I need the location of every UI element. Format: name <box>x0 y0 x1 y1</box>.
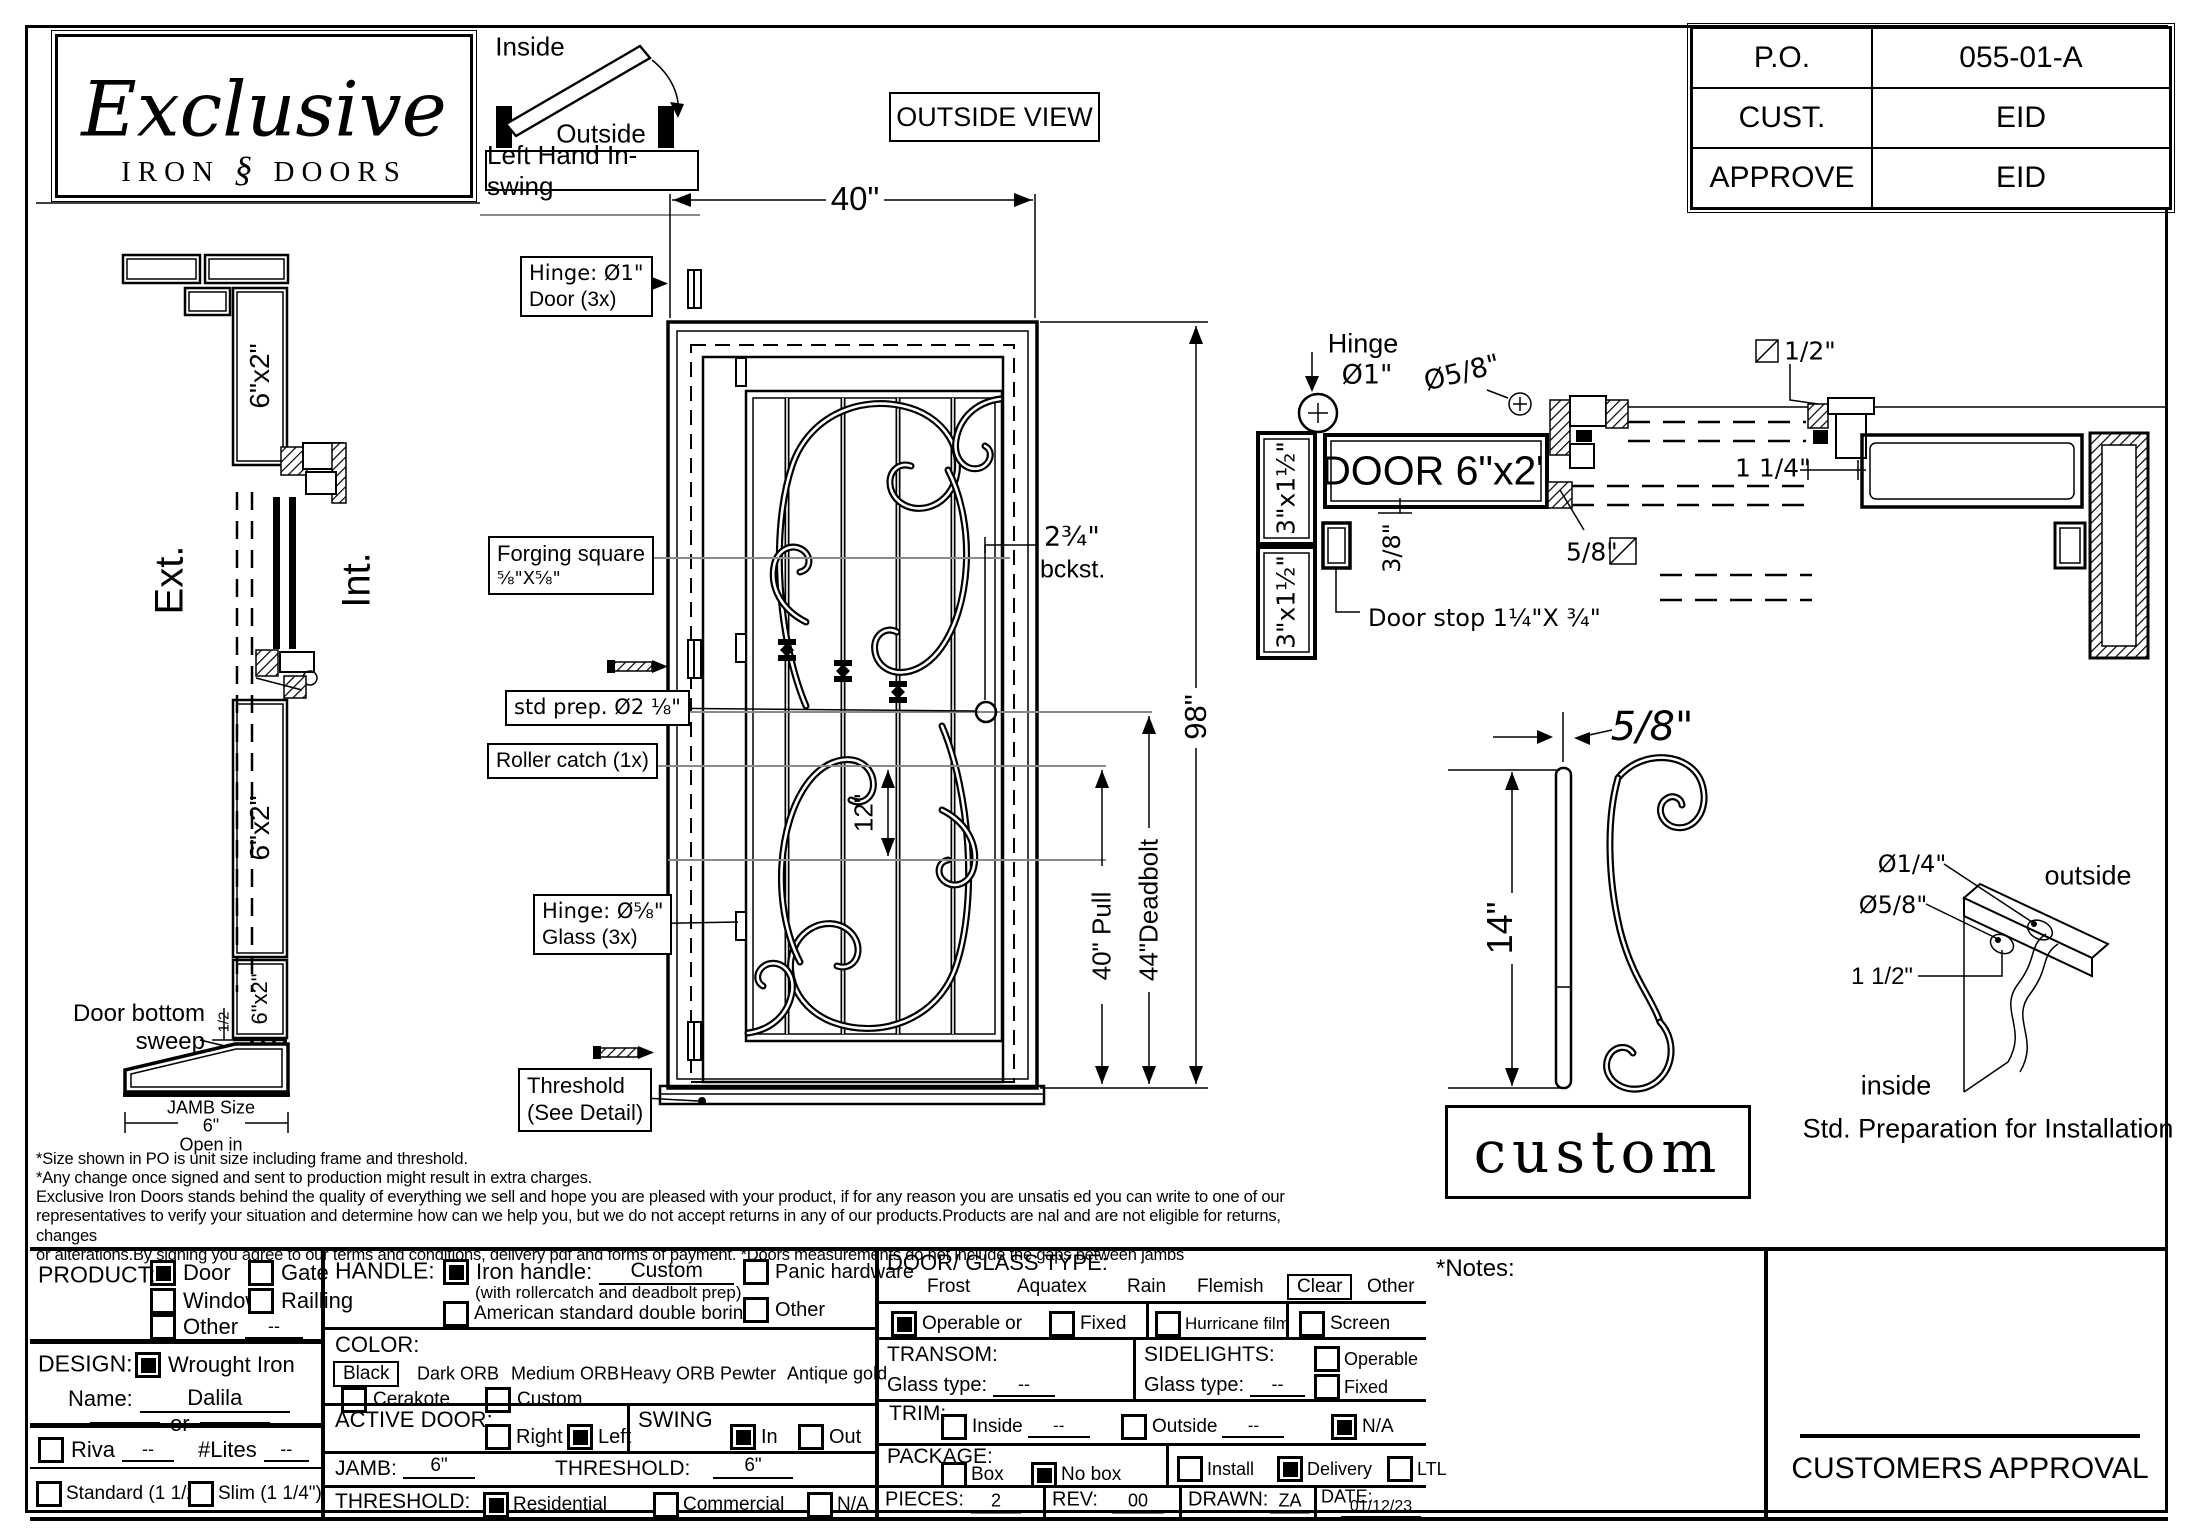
dim-width: 40" <box>831 180 879 218</box>
trim-outside-value[interactable]: -- <box>1222 1416 1284 1438</box>
hinge-door-label: Hinge: Ø1" Door (3x) <box>520 256 653 317</box>
drawn-cell: DRAWN: ZA <box>1182 1485 1317 1517</box>
disclaimer-line: representatives to verify your situation… <box>36 1207 1296 1245</box>
sidelights-operable-label: Operable <box>1344 1349 1418 1370</box>
operable-checkbox[interactable] <box>891 1311 917 1337</box>
sidelights-fixed-checkbox[interactable] <box>1314 1374 1340 1400</box>
screen-checkbox[interactable] <box>1299 1311 1325 1337</box>
head-half-square: 1/2" <box>1784 337 1836 366</box>
bar-length: 14" <box>1479 902 1521 955</box>
open-in-label: Open in <box>179 1135 242 1156</box>
approve-value: EID <box>1872 148 2171 209</box>
install-outside: outside <box>2044 861 2131 892</box>
sweep-dim: 1/2 <box>216 1012 233 1033</box>
active-door-label: ACTIVE DOOR: <box>335 1407 493 1433</box>
notes-section: *Notes: <box>1426 1251 1768 1517</box>
transom-label: TRANSOM: <box>887 1343 998 1367</box>
dim-height: 98" <box>1178 694 1214 740</box>
transom-glass-label: Glass type: <box>887 1374 987 1397</box>
ship-delivery-label: Delivery <box>1307 1459 1372 1480</box>
product-other-checkbox[interactable] <box>150 1314 176 1340</box>
fixed-label: Fixed <box>1080 1313 1126 1335</box>
backset-dim-line2: bckst. <box>1040 556 1105 585</box>
ship-ltl-checkbox[interactable] <box>1387 1456 1413 1482</box>
threshold-label: Threshold (See Detail) <box>518 1068 652 1132</box>
threshold-size-label: THRESHOLD: <box>555 1457 690 1481</box>
hinge-glass-label: Hinge: Ø⅝" Glass (3x) <box>533 894 672 955</box>
handle-iron-checkbox[interactable] <box>443 1259 469 1285</box>
section-ext-label: Ext. <box>148 546 193 615</box>
handle-panic-checkbox[interactable] <box>743 1259 769 1285</box>
threshold-line2: (See Detail) <box>527 1100 643 1127</box>
threshold-commercial-checkbox[interactable] <box>653 1492 679 1518</box>
sidelights-operable-checkbox[interactable] <box>1314 1346 1340 1372</box>
active-left-checkbox[interactable] <box>567 1424 593 1450</box>
threshold-residential-checkbox[interactable] <box>483 1492 509 1518</box>
head-door-label: DOOR 6"x2" <box>1321 448 1551 495</box>
handle-american-label: American standard double boring <box>474 1303 754 1325</box>
approval-label: CUSTOMERS APPROVAL <box>1791 1452 2148 1486</box>
swing-inside-label: Inside <box>495 32 564 63</box>
sidelights-glass-value[interactable]: -- <box>1250 1374 1305 1397</box>
table-row: CUST.EID <box>1692 88 2171 148</box>
custom-tag-box: custom <box>1445 1105 1751 1199</box>
riva-label: Riva <box>71 1437 115 1463</box>
head-hinge-label: Hinge <box>1328 329 1399 360</box>
roller-catch-text: Roller catch (1x) <box>496 748 649 774</box>
rev-cell: REV: 00 <box>1046 1485 1182 1517</box>
standard-slim-section: Standard (1 1/2") Slim (1 1/4") <box>30 1467 325 1517</box>
dim-deadbolt: 44"Deadbolt <box>1134 839 1165 981</box>
install-offset: 1 1/2" <box>1851 963 1913 991</box>
riva-section: Riva-- #Lites-- <box>30 1423 325 1467</box>
hurricane-section: Hurricane film <box>1149 1301 1289 1337</box>
door-bottom-line1: Door bottom <box>60 1000 205 1028</box>
color-opt-heavyorb[interactable]: Heavy ORB <box>620 1364 715 1385</box>
trim-outside-checkbox[interactable] <box>1121 1414 1147 1440</box>
active-door-section: ACTIVE DOOR: Right Left <box>325 1403 630 1451</box>
glass-clear-selected[interactable]: Clear <box>1287 1274 1352 1300</box>
drawn-label: DRAWN: <box>1188 1489 1268 1512</box>
logo-subtitle: IRON § DOORS <box>121 148 407 190</box>
color-label: COLOR: <box>335 1332 419 1358</box>
trim-na-checkbox[interactable] <box>1331 1414 1357 1440</box>
active-right-label: Right <box>516 1426 563 1449</box>
glass-flemish[interactable]: Flemish <box>1197 1276 1264 1298</box>
trim-na-label: N/A <box>1362 1416 1394 1438</box>
product-other-value[interactable]: -- <box>245 1316 303 1339</box>
ship-delivery-checkbox[interactable] <box>1277 1456 1303 1482</box>
screen-label: Screen <box>1330 1313 1390 1335</box>
swing-section: SWING In Out <box>630 1403 879 1451</box>
swing-out-label: Out <box>829 1426 861 1449</box>
trim-inside-label: Inside <box>972 1416 1023 1438</box>
handle-other-checkbox[interactable] <box>743 1297 769 1323</box>
install-hole-small: Ø1/4" <box>1878 850 1947 878</box>
glass-rain[interactable]: Rain <box>1127 1276 1166 1298</box>
glass-frost[interactable]: Frost <box>927 1276 970 1298</box>
threshold-type-section: THRESHOLD: Residential Commercial N/A <box>325 1485 879 1517</box>
install-hole-large: Ø5/8" <box>1859 891 1928 919</box>
swing-in-label: In <box>761 1426 778 1449</box>
design-wrought-checkbox[interactable] <box>135 1352 161 1378</box>
design-section: DESIGN: Wrought Iron Name:Dalila or <box>30 1339 325 1423</box>
section-frame-label-bot: 6"x2" <box>247 973 273 1024</box>
custom-tag: custom <box>1474 1118 1723 1186</box>
color-opt-pewter[interactable]: Pewter <box>720 1364 776 1385</box>
logo-box: Exclusive IRON § DOORS <box>55 34 473 198</box>
door-bottom-line2: sweep <box>60 1028 205 1056</box>
design-name-value[interactable]: Dalila <box>140 1385 290 1413</box>
product-label: PRODUCT: <box>38 1262 156 1289</box>
operable-section: Operableor Fixed <box>879 1301 1149 1337</box>
swing-caption-box: Left Hand In-swing <box>485 150 699 191</box>
rev-value[interactable]: 00 <box>1112 1491 1164 1514</box>
forging-line2: ⅝"X⅝" <box>497 568 645 590</box>
hinge-door-line1: Hinge: Ø1" <box>529 261 644 287</box>
hurricane-checkbox[interactable] <box>1155 1311 1181 1337</box>
hinge-door-line2: Door (3x) <box>529 287 644 313</box>
product-other-label: Other <box>183 1314 238 1340</box>
handle-american-checkbox[interactable] <box>443 1301 469 1327</box>
riva-checkbox[interactable] <box>38 1437 64 1463</box>
lites-value[interactable]: -- <box>264 1439 309 1462</box>
outside-view-label: OUTSIDE VIEW <box>896 102 1093 133</box>
forging-line1: Forging square <box>497 541 645 568</box>
swing-outside-label: Outside <box>556 119 646 150</box>
ship-install-label: Install <box>1207 1459 1254 1480</box>
signature-line[interactable] <box>1800 1434 2140 1438</box>
head-door-stop: Door stop 1¼"X ¾" <box>1368 604 1601 632</box>
logo-doors: DOORS <box>274 156 407 188</box>
bar-thickness: 5/8" <box>1611 704 1694 750</box>
handle-iron-label: Iron handle: <box>476 1259 592 1285</box>
threshold-na-label: N/A <box>837 1494 869 1516</box>
head-reveal: 1 1/4" <box>1735 454 1811 483</box>
glass-type-label: DOOR/ GLASS TYPE: <box>887 1250 1108 1276</box>
head-stop-offset: 3/8" <box>1378 523 1406 573</box>
product-gate-checkbox[interactable] <box>248 1260 274 1286</box>
handle-section: HANDLE: Iron handle:Custom (with rollerc… <box>325 1251 879 1327</box>
date-value[interactable]: 01/12/23 <box>1341 1498 1421 1518</box>
active-left-label: Left <box>598 1426 631 1449</box>
door-bottom-sweep-label: Door bottom sweep <box>60 1000 205 1055</box>
package-nobox-label: No box <box>1061 1464 1121 1486</box>
head-jamb-label-1: 3"x1½" <box>1272 441 1301 535</box>
transom-section: TRANSOM: Glass type:-- <box>879 1337 1136 1399</box>
hinge-glass-line2: Glass (3x) <box>542 925 663 951</box>
section-frame-label-mid: 6"x2" <box>244 795 276 860</box>
design-wrought-label: Wrought Iron <box>168 1352 295 1378</box>
po-table: P.O.055-01-A CUST.EID APPROVEEID <box>1690 26 2172 210</box>
screen-section: Screen <box>1289 1301 1426 1337</box>
notes-label: *Notes: <box>1436 1255 1515 1283</box>
color-opt-antiquegold[interactable]: Antique gold <box>787 1364 887 1385</box>
jamb-threshold-section: JAMB: 6" THRESHOLD: 6" <box>325 1451 879 1485</box>
threshold-size-value[interactable]: 6" <box>713 1455 793 1479</box>
slim-label: Slim (1 1/4") <box>218 1483 322 1505</box>
product-window-checkbox[interactable] <box>150 1288 176 1314</box>
disclaimer-line: *Any change once signed and sent to prod… <box>36 1169 1296 1188</box>
dim-bottom: 12" <box>849 794 880 832</box>
jamb-label: JAMB: <box>335 1457 397 1481</box>
glass-aquatex[interactable]: Aquatex <box>1017 1276 1087 1298</box>
cust-label: CUST. <box>1692 88 1873 148</box>
sidelights-fixed-label: Fixed <box>1344 1377 1388 1398</box>
head-jamb-label-2: 3"x1½" <box>1272 555 1301 649</box>
outside-view-box: OUTSIDE VIEW <box>889 92 1100 142</box>
head-glass-thickness: 5/8" <box>1566 538 1618 567</box>
lites-label: #Lites <box>198 1437 257 1463</box>
design-label: DESIGN: <box>38 1351 133 1378</box>
package-label: PACKAGE: <box>887 1445 993 1469</box>
drawing-sheet: Exclusive IRON § DOORS Inside Outside Le… <box>0 0 2196 1532</box>
table-row: APPROVEEID <box>1692 148 2171 209</box>
operable-or: or <box>1005 1313 1022 1335</box>
hinge-glass-line1: Hinge: Ø⅝" <box>542 899 663 925</box>
forging-square-label: Forging square ⅝"X⅝" <box>488 536 654 595</box>
std-prep-text: std prep. Ø2 ⅛" <box>514 695 681 721</box>
logo-script: Exclusive <box>81 65 446 154</box>
install-inside: inside <box>1861 1071 1932 1102</box>
threshold-residential-label: Residential <box>513 1494 607 1516</box>
head-hinge-dia: Ø1" <box>1342 360 1393 391</box>
pieces-label: PIECES: <box>885 1489 964 1512</box>
install-caption: Std. Preparation for Installation <box>1803 1114 2174 1145</box>
jamb-value[interactable]: 6" <box>403 1455 475 1479</box>
std-prep-label: std prep. Ø2 ⅛" <box>505 690 690 726</box>
product-gate-label: Gate <box>281 1260 329 1286</box>
fixed-checkbox[interactable] <box>1049 1311 1075 1337</box>
product-railling-checkbox[interactable] <box>248 1288 274 1314</box>
rev-label: REV: <box>1052 1489 1098 1512</box>
product-section: PRODUCT: Door Gate Window Railling Other… <box>30 1251 325 1339</box>
threshold-line1: Threshold <box>527 1073 643 1100</box>
sidelights-section: SIDELIGHTS: Glass type:-- Operable Fixed <box>1136 1337 1426 1399</box>
handle-iron-note: (with rollercatch and deadbolt prep) <box>475 1283 741 1303</box>
glass-other[interactable]: Other <box>1367 1276 1415 1298</box>
disclaimer-line: Exclusive Iron Doors stands behind the q… <box>36 1188 1296 1207</box>
sidelights-label: SIDELIGHTS: <box>1144 1343 1275 1367</box>
backset-dim-line1: 2¾" <box>1044 522 1100 553</box>
threshold-commercial-label: Commercial <box>683 1494 784 1516</box>
approve-label: APPROVE <box>1692 148 1873 209</box>
color-section: COLOR: Black Dark ORB Medium ORB Heavy O… <box>325 1327 879 1403</box>
shipping-section: Install Delivery LTL <box>1169 1443 1426 1485</box>
transom-glass-value[interactable]: -- <box>993 1374 1055 1397</box>
trim-outside-label: Outside <box>1152 1416 1217 1438</box>
trim-label: TRIM: <box>889 1402 946 1426</box>
dim-pull: 40" Pull <box>1087 892 1118 981</box>
table-row: P.O.055-01-A <box>1692 28 2171 89</box>
swing-out-checkbox[interactable] <box>798 1424 824 1450</box>
color-selected[interactable]: Black <box>333 1361 399 1387</box>
sidelights-glass-label: Glass type: <box>1144 1374 1244 1397</box>
riva-value[interactable]: -- <box>122 1439 174 1462</box>
slim-checkbox[interactable] <box>188 1481 214 1507</box>
threshold-na-checkbox[interactable] <box>807 1492 833 1518</box>
operable-label: Operable <box>922 1313 1000 1335</box>
handle-label: HANDLE: <box>335 1258 435 1285</box>
color-opt-mediumorb[interactable]: Medium ORB <box>511 1364 619 1385</box>
trim-section: TRIM: Inside-- Outside-- N/A <box>879 1399 1426 1443</box>
logo-iron: IRON <box>121 156 220 188</box>
hurricane-label: Hurricane film <box>1185 1314 1290 1334</box>
approval-section: CUSTOMERS APPROVAL <box>1768 1251 2168 1517</box>
section-int-label: Int. <box>335 552 380 608</box>
cust-value: EID <box>1872 88 2171 148</box>
jamb-size-value: 6" <box>203 1116 219 1137</box>
ship-install-checkbox[interactable] <box>1177 1456 1203 1482</box>
design-name-label: Name: <box>68 1386 133 1412</box>
date-cell: DATE: 01/12/23 <box>1317 1485 1426 1517</box>
handle-other-label: Other <box>775 1299 825 1322</box>
trim-inside-value[interactable]: -- <box>1028 1416 1090 1438</box>
glass-type-section: DOOR/ GLASS TYPE: Frost Aquatex Rain Fle… <box>879 1251 1426 1301</box>
swing-in-checkbox[interactable] <box>730 1424 756 1450</box>
roller-catch-label: Roller catch (1x) <box>487 743 658 779</box>
standard-checkbox[interactable] <box>36 1481 62 1507</box>
color-opt-darkorb[interactable]: Dark ORB <box>417 1364 499 1385</box>
logo-ornament-icon: § <box>234 149 259 189</box>
pieces-value[interactable]: 2 <box>971 1491 1021 1514</box>
handle-iron-value[interactable]: Custom <box>599 1259 734 1285</box>
product-door-label: Door <box>183 1260 231 1286</box>
drawn-value[interactable]: ZA <box>1270 1491 1310 1514</box>
po-value: 055-01-A <box>1872 28 2171 89</box>
po-label: P.O. <box>1692 28 1873 89</box>
threshold-type-label: THRESHOLD: <box>335 1490 470 1514</box>
swing-label: SWING <box>638 1407 713 1433</box>
package-section: PACKAGE: Box No box <box>879 1443 1169 1485</box>
section-frame-label-top: 6"x2" <box>244 343 276 408</box>
pieces-cell: PIECES: 2 <box>879 1485 1046 1517</box>
order-form: PRODUCT: Door Gate Window Railling Other… <box>30 1247 2168 1521</box>
